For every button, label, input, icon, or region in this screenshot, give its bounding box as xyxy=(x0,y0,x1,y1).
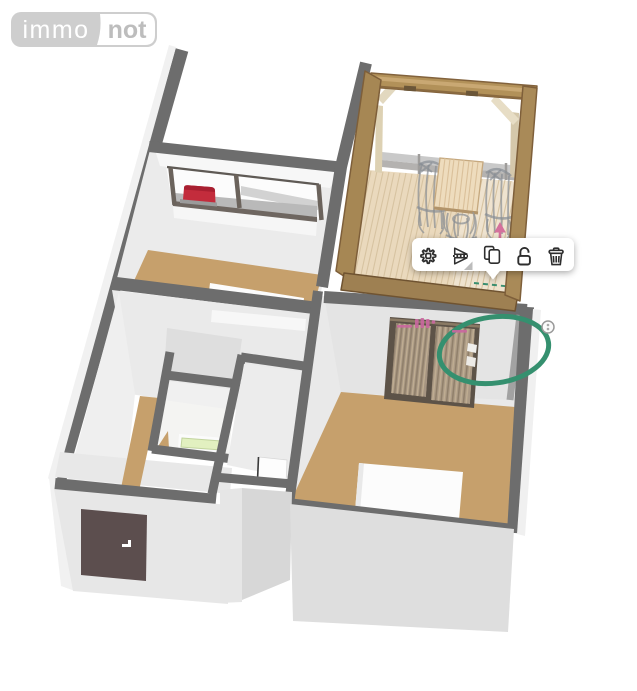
svg-text:immo: immo xyxy=(22,16,89,44)
svg-text:not: not xyxy=(108,16,148,44)
